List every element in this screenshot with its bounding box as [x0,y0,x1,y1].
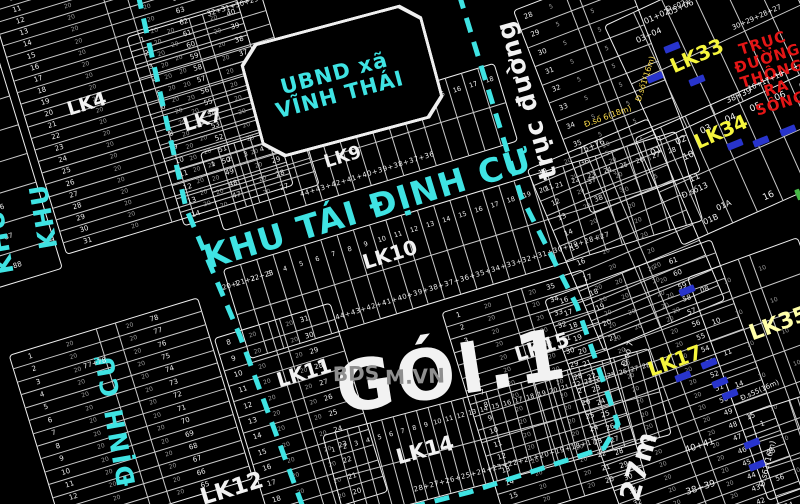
lot-number: 10 [489,427,500,436]
lot-number: 1 [140,36,146,44]
lot-number: 4 [282,265,288,272]
lot-number: 16 [474,205,484,214]
dimension-number: 20 [71,26,80,34]
dimension-number: 20 [253,347,262,355]
lot-number: 14 [563,228,574,238]
dimension-number: 20 [133,348,142,356]
parcel-line [0,124,18,176]
lot-number: 10 [61,467,72,476]
dimension-number: 20 [567,418,576,426]
dimension-number: 20 [127,211,136,219]
dimension-number: 20 [689,379,698,387]
dimension-number: 20 [646,247,655,256]
lot-number: 8 [168,130,174,138]
dimension-number: 20 [146,15,155,23]
lot-number: 57 [686,307,697,317]
dimension-number: 20 [287,457,296,465]
dimension-number: 20 [109,153,118,161]
dimension-number: 20 [656,290,665,298]
lot-number: 5 [43,404,49,412]
lot-number: 11 [444,414,454,422]
dimension-number: 20 [621,187,630,196]
dimension-number: 20 [187,95,196,103]
dimension-number: 20 [263,379,272,387]
lot-number: 5 [156,90,162,98]
lot-number: 2 [144,50,150,58]
dimension-number: 20 [282,441,291,449]
dimension-number: 20 [698,404,707,412]
lot-number: 68 [188,442,199,451]
lot-number: 6 [314,255,320,262]
dimension-number: 20 [663,474,672,482]
dimension-number: 20 [528,289,537,297]
dimension-number: 20 [81,61,90,69]
dimension-number: 5 [604,45,610,52]
dimension-number: 20 [631,385,640,393]
dimension-number: 20 [73,366,82,374]
dimension-number: 20 [69,353,78,361]
lot-number: 12 [68,493,79,502]
dimension-number: 20 [575,444,584,452]
lot-number: 31 [544,66,555,76]
lot-number: 18 [568,321,579,331]
lot-number: 78 [149,314,160,323]
lot-number: 7 [400,427,406,434]
lot-number: 3 [354,440,360,447]
lot-number: 26 [323,393,334,402]
dimension-number: 20 [314,414,323,422]
lot-number: 10 [433,418,443,426]
lot-number: 12 [243,401,254,410]
lot-number: 67 [192,455,203,464]
dimension-number: 20 [172,476,181,484]
lot-number: 11 [178,170,189,179]
lot-number: 16 [262,463,273,472]
lot-number: 56 [691,320,702,330]
dimension-number: 20 [673,499,682,504]
lot-number: 13 [557,213,568,223]
lot-number: 66 [196,468,207,477]
lot-number: 14 [505,478,516,487]
lot-number: 9 [363,240,369,247]
dimension-number: 20 [571,431,580,439]
dimension-number: 20 [532,302,541,310]
lot-number: 13 [19,28,30,37]
lot-number: 15 [509,491,520,500]
dimension-number: 20 [636,398,645,406]
lot-number: 16 [559,296,570,306]
lot-number: 9 [423,421,429,428]
lot-number: 25 [61,167,72,176]
lot-number: 12 [497,453,508,462]
dimension-number: 10 [735,309,744,317]
dimension-number: 20 [248,332,257,340]
parcel-line [0,67,1,119]
lot-number: 11 [722,348,733,358]
lot-number: 24 [596,397,607,407]
lot-number: 16 [30,63,41,72]
lot-number: 29 [75,213,86,222]
lot-number: 1 [27,352,33,360]
lot-number: 18 [485,76,495,85]
lot-number: 1 [330,446,336,453]
lot-number: 10 [377,235,387,244]
dimension-number: 20 [112,495,121,503]
parcel-line [0,96,9,148]
dimension-number: 20 [296,488,305,496]
lot-number: 74 [165,365,176,374]
dimension-number: 20 [157,425,166,433]
dimension-number: 10 [793,360,800,368]
lot-number: 77 [153,327,164,336]
lot-number: 24 [58,155,69,164]
lot-number: 13 [425,220,435,229]
dimension-number: 20 [99,118,108,126]
lot-number: 8 [226,339,232,347]
lot-number: 2 [31,365,37,373]
lot-number: 8 [412,424,418,431]
lot-number: 69 [184,430,195,439]
lot-number: 15 [26,51,37,60]
lot-number: 20 [44,109,55,118]
lot-number: 19 [522,190,532,199]
dimension-number: 20 [483,302,492,310]
lot-number: 11 [393,230,403,239]
lot-number: 47 [732,434,743,444]
dimension-number: 20 [721,467,730,475]
dimension-number: 20 [543,496,552,504]
lot-number: 12 [456,411,466,419]
dimension-number: 5 [584,95,590,102]
dimension-number: 20 [230,82,239,90]
dimension-number: 20 [106,142,115,150]
lot-number: 21 [582,359,593,369]
lot-number: 14 [191,210,202,219]
dimension-number: 20 [535,470,544,478]
lot-number: 6 [160,103,166,111]
lot-number: 30 [79,225,90,234]
lot-number: 1 [210,161,216,168]
lot-number: 11 [64,480,75,489]
dimension-number: 20 [143,4,152,12]
lot-number: 60 [672,269,683,279]
dimension-number: 20 [563,158,572,167]
dimension-number: 20 [217,41,226,49]
lot-number: 26 [65,179,76,188]
lot-number: 30 [304,331,315,340]
dimension-number: 20 [85,72,94,80]
dimension-number: 20 [730,493,739,501]
dimension-number: 20 [125,322,134,330]
lot-number: 48 [728,421,739,431]
dimension-number: 20 [668,487,677,495]
dimension-number: 20 [161,438,170,446]
dimension-number: 20 [213,28,222,36]
dimension-number: 20 [519,418,528,426]
lot-number: 75 [161,353,172,362]
lot-number: 19 [40,98,51,107]
dimension-number: 20 [583,203,592,212]
dimension-number: 20 [226,68,235,76]
dimension-number: 5 [555,22,561,29]
dimension-number: 20 [78,49,87,57]
lot-number: 11 [544,183,555,193]
dimension-number: 20 [74,38,83,46]
lot-number: 22 [51,132,62,141]
lot-number: 27 [68,190,79,199]
lot-number: 14 [441,215,451,224]
dimension-number: 20 [145,386,154,394]
dimension-number: 20 [153,412,162,420]
lot-number: 7 [51,429,57,437]
green-tick-marker [794,188,800,200]
lot-number: 15 [569,243,580,253]
dimension-number: 20 [309,399,318,407]
lot-number: 17 [469,81,479,90]
dimension-number: 20 [599,297,608,305]
lot-number: 3 [243,151,249,158]
dimension-number: 20 [615,172,624,181]
dimension-number: 20 [579,456,588,464]
lot-number: 13 [501,466,512,475]
dimension-number: 20 [702,417,711,425]
dimension-number: 20 [183,81,192,89]
lot-number: 8 [55,442,61,450]
dimension-number: 20 [165,451,174,459]
lot-number: 32 [551,84,562,94]
lot-number: 70 [180,417,191,426]
dimension-number: 20 [627,373,636,381]
dimension-number: 20 [272,410,281,418]
lot-number: 25 [600,410,611,420]
lot-number: 6 [47,417,53,425]
lot-number: 23 [591,385,602,395]
lot-number: 1 [759,420,765,428]
lot-number: 9 [172,143,178,151]
lot-number: 11 [238,385,249,394]
lot-number: 19 [573,334,584,344]
dimension-number: 20 [175,55,184,63]
dimension-number: 10 [758,265,767,273]
lot-number: 28 [523,11,534,21]
lot-number: 3 [148,63,154,71]
dimension-number: 20 [89,417,98,425]
dimension-number: 20 [65,340,74,348]
dimension-number: 10 [758,372,767,380]
dimension-number: 20 [124,199,133,207]
dimension-number: 20 [608,322,617,330]
lot-number: 8 [347,245,353,252]
dimension-number: 20 [149,399,158,407]
dimension-number: 20 [527,444,536,452]
dimension-number: 20 [113,165,122,173]
dimension-number: 20 [238,108,247,116]
dimension-number: 20 [291,472,300,480]
lot-number: 14 [252,432,263,441]
dimension-number: 20 [716,455,725,463]
dimension-number: 20 [652,277,661,285]
lot-number: 14 [22,40,33,49]
lot-number: 30 [537,48,548,58]
lot-number: 9 [59,455,65,463]
lot-number: 15 [257,448,268,457]
lot-number: 17 [33,74,44,83]
dimension-number: 20 [659,461,668,469]
lot-number: 23 [54,144,65,153]
lot-number: 6 [388,431,394,438]
lot-number: 18 [37,86,48,95]
lot-number: 10 [174,156,185,165]
lot-number: 44 [746,472,757,482]
lot-number: 08 [699,285,710,295]
lot-number: 22 [586,372,597,382]
dimension-number: 20 [693,391,702,399]
lot-number: 5 [298,260,304,267]
lot-number: 18 [271,495,282,504]
dimension-number: 20 [168,463,177,471]
watermark-part1: BDS [333,363,380,386]
lot-number: 13 [247,417,258,426]
lot-number: 4 [259,146,265,153]
dimension-number: 20 [137,361,146,369]
dimension-number: 20 [515,406,524,414]
lot-number: 15 [458,210,468,219]
dimension-number: 20 [595,233,604,242]
dimension-number: 20 [634,217,643,226]
lot-number: 42 [755,497,766,504]
dimension-number: 20 [117,176,126,184]
lot-number: 73 [169,378,180,387]
dimension-number: 20 [258,363,267,371]
dimension-number: 20 [613,335,622,343]
dimension-number: 20 [85,405,94,413]
dimension-number: 20 [587,482,596,490]
dimension-number: 20 [277,425,286,433]
dimension-number: 10 [769,296,778,304]
lot-number: 7 [331,250,337,257]
cadastral-map[interactable]: 8020208120208220208320208420208520208620… [0,0,800,504]
lot-number: 13 [187,196,198,205]
dimension-number: 20 [647,265,656,273]
lot-number: 72 [172,391,183,400]
lot-number: 16 [576,258,587,268]
dimension-number: 20 [77,379,86,387]
lot-number: 34 [565,121,576,131]
dimension-number: 20 [570,173,579,182]
dimension-number: 20 [594,284,603,292]
lot-number: 26 [605,423,616,433]
dimension-number: 5 [562,40,568,47]
lot-number: 12 [15,17,26,26]
lot-number: 2 [342,443,348,450]
dimension-number: 20 [670,328,679,336]
dimension-number: 20 [222,55,231,63]
dimension-number: 20 [179,68,188,76]
lot-number: 1 [455,311,461,319]
lot-number: 29 [530,29,541,39]
dimension-number: 5 [597,27,603,34]
lot-number: 18 [506,195,516,204]
lot-number: 10 [711,317,722,327]
lot-number: 20 [577,347,588,357]
lot-number: 17 [490,200,500,209]
dimension-number: 20 [603,309,612,317]
dimension-number: 20 [640,411,649,419]
lot-number: 31 [299,315,310,324]
lot-number: 61 [668,256,679,266]
lot-number: 11 [493,440,504,449]
lot-number: 25 [328,409,339,418]
dimension-number: 20 [661,303,670,311]
dimension-number: 20 [93,430,102,438]
dimension-number: 5 [577,77,583,84]
lot-number: 02 [674,135,688,148]
lot-number: 10 [233,370,244,379]
dimension-number: 20 [608,156,617,165]
dimension-number: 5 [611,64,617,71]
dimension-number: 20 [166,28,175,36]
lot-number: 4 [39,391,45,399]
dimension-number: 20 [531,457,540,465]
dimension-number: 20 [608,263,617,272]
lot-number: 12 [183,183,194,192]
dimension-number: 20 [290,336,299,344]
dimension-number: 20 [199,135,208,143]
dimension-number: 20 [640,232,649,241]
lot-number: 71 [176,404,187,413]
dimension-number: 10 [723,277,732,285]
dimension-number: 20 [242,122,251,130]
dimension-number: 20 [602,248,611,257]
dimension-number: 20 [523,431,532,439]
dimension-number: 20 [627,202,636,211]
lot-number: 35 [545,282,556,291]
dimension-number: 20 [576,188,585,197]
dimension-number: 20 [81,392,90,400]
lot-number: 39 [230,22,241,31]
lot-number: 17 [563,309,574,319]
lot-number: 12 [409,225,419,234]
dimension-number: 20 [102,130,111,138]
lot-number: 01 [649,146,663,159]
dimension-number: 5 [618,82,624,89]
lot-number: 56 [775,474,786,483]
lot-number: 21 [47,121,58,130]
lot-number: 3 [35,378,41,386]
dimension-number: 20 [67,14,76,22]
dimension-number: 20 [589,218,598,227]
lot-number: 9 [487,415,493,423]
lot-number: 5 [377,434,383,441]
lot-number: 63 [175,6,186,15]
dimension-number: 20 [539,483,548,491]
dimension-number: 5 [548,4,554,11]
dimension-number: 20 [267,394,276,402]
dimension-number: 20 [285,321,294,329]
dimension-number: 20 [583,469,592,477]
dimension-number: 20 [234,95,243,103]
lot-number: 4 [365,437,371,444]
dimension-number: 20 [564,405,573,413]
dimension-number: 20 [726,480,735,488]
lot-number: 33 [558,103,569,113]
lot-number: 7 [164,117,170,125]
dimension-number: 20 [171,41,180,49]
dimension-number: 5 [590,9,596,16]
lot-number: 38 [234,35,245,44]
lot-number: 4 [152,77,158,85]
dimension-number: 5 [569,59,575,66]
